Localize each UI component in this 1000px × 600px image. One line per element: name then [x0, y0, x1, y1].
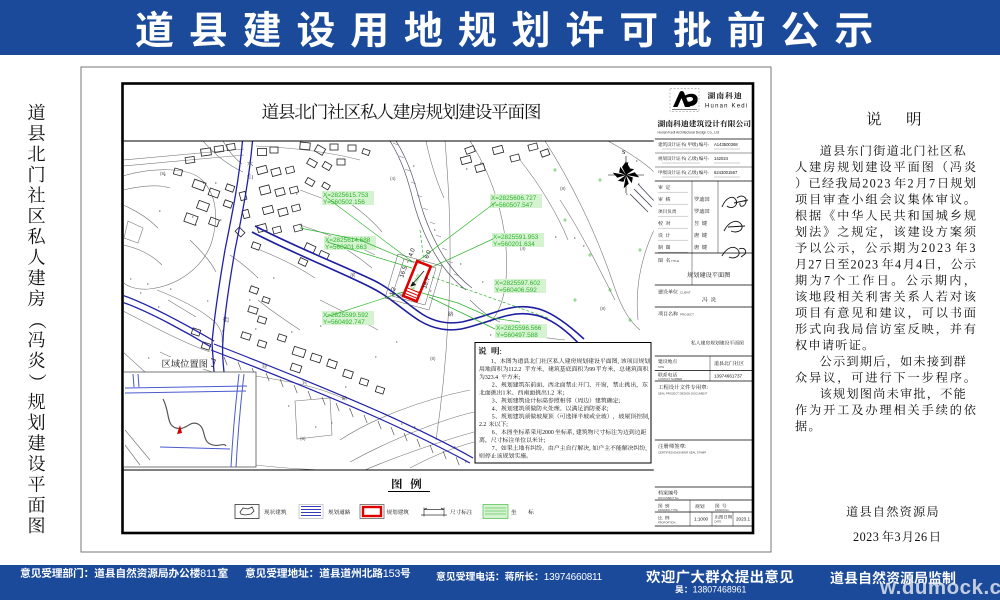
- svg-text:4: 4: [492, 406, 495, 412]
- svg-text:X=2825596.566: X=2825596.566: [496, 325, 542, 332]
- svg-text:6: 6: [492, 430, 495, 436]
- svg-text:99: 99: [589, 367, 595, 373]
- svg-text:PROPORTION: PROPORTION: [658, 521, 676, 525]
- svg-text::: :: [708, 142, 709, 147]
- svg-text:1:1000: 1:1000: [694, 517, 708, 522]
- svg-text:TITLE: TITLE: [671, 259, 679, 263]
- svg-text:Hunan Kedi Architectural Desig: Hunan Kedi Architectural Design Co., Ltd: [658, 131, 720, 135]
- svg-text:DRAWING TYPE: DRAWING TYPE: [658, 508, 678, 512]
- svg-text:(8): (8): [560, 186, 566, 191]
- svg-text:X=2825591.953: X=2825591.953: [493, 234, 539, 241]
- svg-text:7: 7: [492, 446, 495, 452]
- svg-text:13807468961: 13807468961: [693, 585, 747, 595]
- svg-text::: :: [707, 385, 709, 391]
- svg-text:7: 7: [929, 176, 936, 190]
- svg-text:DATE: DATE: [715, 520, 722, 524]
- svg-text:CERTIFIED ENGINEER SEAL STAMP: CERTIFIED ENGINEER SEAL STAMP: [658, 451, 706, 455]
- svg-text:Y=560497.588: Y=560497.588: [496, 332, 538, 339]
- svg-text:27: 27: [808, 257, 822, 271]
- svg-text:4.0: 4.0: [408, 247, 417, 258]
- svg-text:4: 4: [916, 257, 923, 271]
- svg-text:X=2825606.727: X=2825606.727: [491, 195, 537, 202]
- svg-text:2: 2: [492, 383, 495, 389]
- svg-text:CONTACT NUMBER: CONTACT NUMBER: [658, 377, 682, 381]
- svg-text:2000: 2000: [542, 430, 554, 436]
- svg-text:Hunan Kedi: Hunan Kedi: [705, 104, 748, 110]
- svg-text:S: S: [622, 150, 625, 156]
- svg-text:16.5: 16.5: [399, 265, 409, 279]
- svg-text:112.2: 112.2: [508, 367, 521, 373]
- svg-text:3: 3: [969, 241, 977, 255]
- svg-text:(4): (4): [390, 176, 396, 181]
- svg-text::: :: [708, 156, 709, 161]
- svg-text:): ): [696, 142, 698, 147]
- svg-text:2023.1: 2023.1: [736, 517, 750, 522]
- svg-text:13974661737: 13974661737: [714, 374, 743, 379]
- svg-text:(: (: [685, 170, 687, 175]
- svg-text:2023: 2023: [853, 530, 879, 544]
- svg-text:5: 5: [492, 414, 495, 420]
- svg-text::: :: [708, 170, 709, 175]
- svg-text:18.7: 18.7: [422, 276, 432, 290]
- svg-text:): ): [696, 156, 698, 161]
- svg-text:w.dumock.com: w.dumock.com: [879, 576, 1000, 599]
- svg-text:(: (: [685, 142, 687, 147]
- svg-text:2023: 2023: [850, 257, 879, 271]
- svg-text:X=2825597.602: X=2825597.602: [495, 280, 541, 287]
- svg-text:DOCUMENT No.: DOCUMENT No.: [658, 496, 679, 500]
- svg-text::: :: [500, 346, 502, 356]
- svg-text:4: 4: [895, 257, 902, 271]
- svg-text:DRAWN No.: DRAWN No.: [715, 508, 730, 512]
- svg-text:13974660811: 13974660811: [544, 572, 603, 583]
- svg-text:Y=560507.547: Y=560507.547: [491, 202, 533, 209]
- svg-text:SITE: SITE: [658, 365, 664, 369]
- svg-text:7: 7: [824, 274, 832, 288]
- svg-text::: :: [685, 444, 687, 450]
- svg-text:323.4: 323.4: [485, 375, 498, 381]
- svg-text:Y=560492.747: Y=560492.747: [323, 319, 365, 326]
- svg-text:(8): (8): [600, 306, 606, 311]
- svg-text:X=2825614.688: X=2825614.688: [325, 237, 371, 244]
- svg-text:Y=560201.634: Y=560201.634: [493, 241, 535, 248]
- svg-text:1: 1: [491, 359, 494, 365]
- svg-text:1.2: 1.2: [547, 391, 554, 397]
- svg-text:CLIENT: CLIENT: [680, 291, 691, 295]
- svg-text:X=2825615.753: X=2825615.753: [323, 192, 369, 199]
- svg-text:A143500368: A143500368: [714, 142, 738, 147]
- svg-text:26: 26: [914, 530, 927, 544]
- svg-text:PROJECT: PROJECT: [680, 313, 694, 317]
- svg-text:153: 153: [383, 568, 401, 580]
- svg-text:2023: 2023: [862, 176, 891, 190]
- svg-text:2023: 2023: [921, 241, 953, 255]
- svg-text:(: (: [685, 156, 687, 161]
- svg-text:2: 2: [908, 176, 915, 190]
- svg-text:6243001567: 6243001567: [714, 170, 738, 175]
- svg-text:(8): (8): [430, 356, 436, 361]
- svg-text:Y=560406.592: Y=560406.592: [495, 287, 537, 294]
- svg-text:811: 811: [200, 568, 217, 580]
- svg-text:(8): (8): [300, 436, 306, 441]
- svg-text:3: 3: [492, 399, 495, 405]
- svg-text:): ): [696, 170, 698, 175]
- svg-text:1: 1: [503, 391, 506, 397]
- svg-text:Y=560502.156: Y=560502.156: [323, 199, 365, 206]
- svg-text:142024: 142024: [714, 156, 729, 161]
- svg-text:SEAL PROJECT DESIGN DOCUMENT: SEAL PROJECT DESIGN DOCUMENT: [658, 392, 708, 396]
- svg-text:2.2: 2.2: [479, 422, 486, 428]
- svg-text:3: 3: [895, 530, 902, 544]
